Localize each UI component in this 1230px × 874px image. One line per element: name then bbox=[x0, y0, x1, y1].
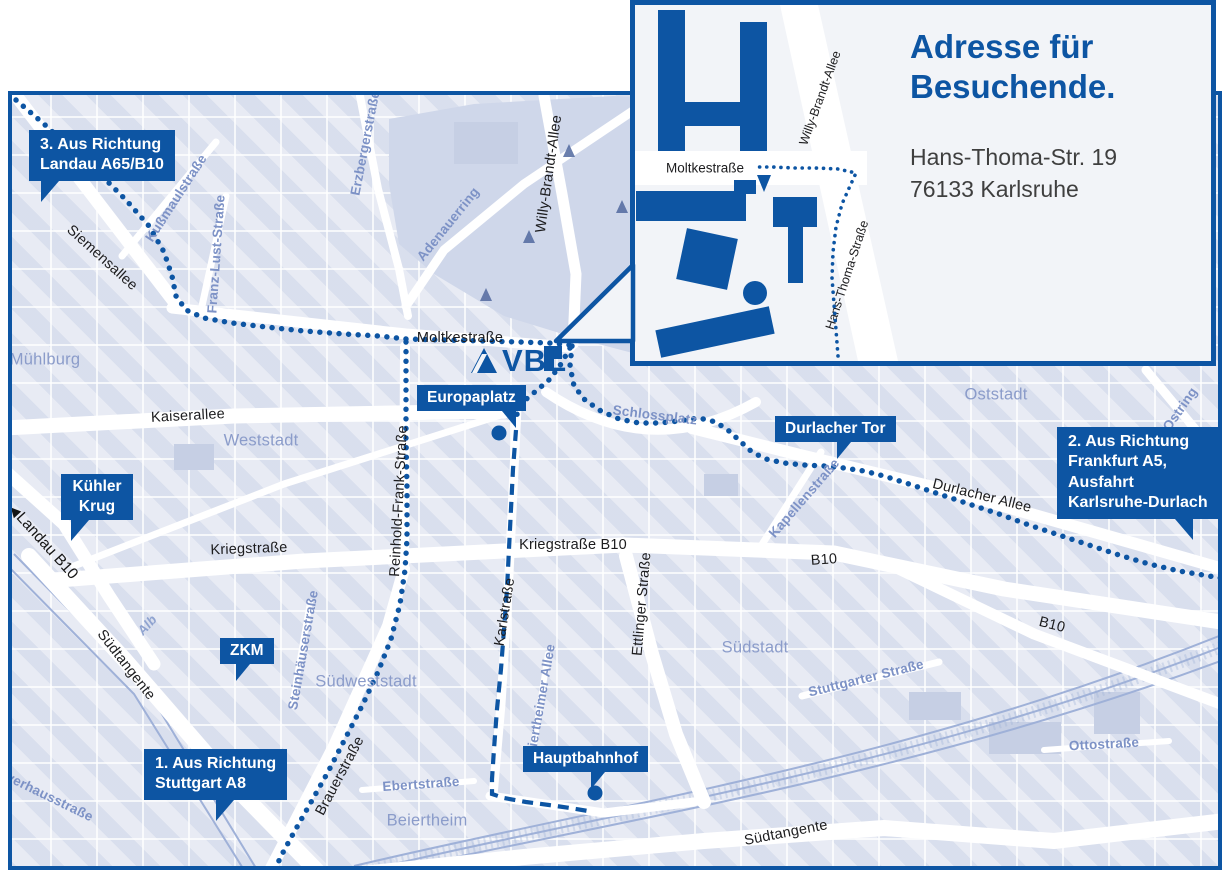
landau-direction-marker: ◀Landau B10 bbox=[8, 501, 81, 583]
callout-line: Stuttgart A8 bbox=[155, 774, 276, 794]
callout-line: 3. Aus Richtung bbox=[40, 135, 164, 155]
street-label: Stuttgarter Straße bbox=[807, 656, 925, 699]
district-label: Südstadt bbox=[722, 639, 789, 658]
callout-line: Landau A65/B10 bbox=[40, 155, 164, 175]
street-label: Schlossplatz bbox=[612, 402, 698, 427]
street-label: Kriegstraße bbox=[210, 540, 288, 559]
street-label: Ettlinger Straße bbox=[630, 552, 655, 657]
street-label: Adenauerring bbox=[414, 184, 482, 264]
water-label: Alb bbox=[134, 612, 160, 638]
inset-moltkestrasse-label: Moltkestraße bbox=[666, 161, 744, 176]
callout-durlacher-tor: Durlacher Tor bbox=[775, 416, 896, 442]
callout-line: Kühler bbox=[71, 477, 123, 497]
callout-line: ZKM bbox=[230, 641, 264, 661]
callout-kuehler-krug: Kühler Krug bbox=[61, 474, 133, 520]
street-label: Ebertstraße bbox=[382, 774, 460, 794]
street-label: Franz-Lust-Straße bbox=[204, 194, 227, 314]
inset-heading-line: Besuchende. bbox=[910, 67, 1115, 107]
europaplatz-stop bbox=[492, 426, 507, 441]
callout-line: 1. Aus Richtung bbox=[155, 754, 276, 774]
hauptbahnhof-stop bbox=[588, 786, 603, 801]
district-label: Südweststadt bbox=[315, 673, 416, 692]
landau-direction-label: Landau B10 bbox=[13, 509, 82, 583]
district-label: Beiertheim bbox=[387, 812, 468, 831]
street-label: Steinhäuserstraße bbox=[285, 589, 321, 711]
callout-pointer bbox=[71, 520, 89, 541]
callout-line: 2. Aus Richtung bbox=[1068, 432, 1208, 452]
vbl-logo-text: VBL bbox=[502, 345, 567, 376]
vbl-directions-map: SiemensalleeMoltkestraßeKaiseralleeKrieg… bbox=[0, 0, 1230, 874]
district-label: Mühlburg bbox=[10, 351, 80, 370]
callout-line: Krug bbox=[71, 497, 123, 517]
callout-landau: 3. Aus Richtung Landau A65/B10 bbox=[29, 130, 175, 181]
street-label: Karlstraße bbox=[492, 577, 519, 648]
street-label: Durlacher Allee bbox=[931, 476, 1033, 516]
street-label: Südtangente bbox=[94, 627, 159, 703]
street-label: B10 bbox=[810, 551, 837, 569]
street-label: Beiertheimer Allee bbox=[522, 643, 558, 765]
callout-line: Frankfurt A5, bbox=[1068, 452, 1208, 472]
vbl-logo: VBL bbox=[470, 345, 567, 376]
route-schlossplatz-durlacher-allee bbox=[570, 346, 1222, 580]
street-label: Kriegstraße B10 bbox=[519, 537, 627, 553]
street-label: Erzbergerstraße bbox=[347, 91, 382, 197]
callout-pointer bbox=[41, 181, 59, 202]
street-label: Moltkestraße bbox=[417, 330, 503, 346]
callout-stuttgart: 1. Aus Richtung Stuttgart A8 bbox=[144, 749, 287, 800]
callout-line: Europaplatz bbox=[427, 388, 516, 408]
callout-pointer bbox=[216, 800, 234, 821]
inset-heading-line: Adresse für bbox=[910, 27, 1115, 67]
callout-pointer bbox=[502, 411, 516, 428]
inset-heading: Adresse für Besuchende. bbox=[910, 27, 1115, 108]
address-street: Hans-Thoma-Str. 19 bbox=[910, 141, 1117, 173]
street-label: Ostring bbox=[1173, 477, 1214, 526]
vbl-triangle-icon bbox=[470, 347, 498, 374]
street-label: Reinhold-Frank-Straße bbox=[387, 425, 411, 577]
street-label: Kußmaulstraße bbox=[142, 152, 210, 245]
callout-europaplatz: Europaplatz bbox=[417, 385, 526, 411]
street-label: Kapellenstraße bbox=[766, 455, 843, 540]
inset-address: Hans-Thoma-Str. 19 76133 Karlsruhe bbox=[910, 141, 1117, 205]
district-label: Weststadt bbox=[224, 432, 299, 451]
street-label: Ottostraße bbox=[1069, 735, 1140, 754]
callout-line: Ausfahrt bbox=[1068, 473, 1208, 493]
callout-pointer bbox=[236, 664, 250, 681]
callout-line: Durlacher Tor bbox=[785, 419, 886, 439]
street-label: Ostring bbox=[1160, 384, 1201, 433]
street-label: Siemensallee bbox=[63, 222, 140, 294]
street-label: Brauerstraße bbox=[313, 734, 368, 818]
callout-zkm: ZKM bbox=[220, 638, 274, 664]
street-label: Kaiserallee bbox=[151, 406, 226, 426]
callout-line: Hauptbahnhof bbox=[533, 749, 638, 769]
district-label: Oststadt bbox=[964, 386, 1027, 405]
street-label: Südtangente bbox=[743, 817, 829, 849]
callout-hauptbahnhof: Hauptbahnhof bbox=[523, 746, 648, 772]
street-label: Pulverhausstraße bbox=[8, 760, 96, 825]
street-label: Willy-Brandt-Allee bbox=[533, 114, 565, 234]
callout-pointer bbox=[591, 772, 605, 789]
railway-tracks bbox=[8, 554, 1222, 870]
street-label: B10 bbox=[1037, 614, 1066, 636]
address-city: 76133 Karlsruhe bbox=[910, 173, 1117, 205]
address-inset: Moltkestraße Willy-Brandt-Allee Hans-Tho… bbox=[630, 0, 1216, 366]
callout-pointer bbox=[837, 442, 851, 459]
route-landau-moltkestrasse bbox=[16, 100, 570, 345]
